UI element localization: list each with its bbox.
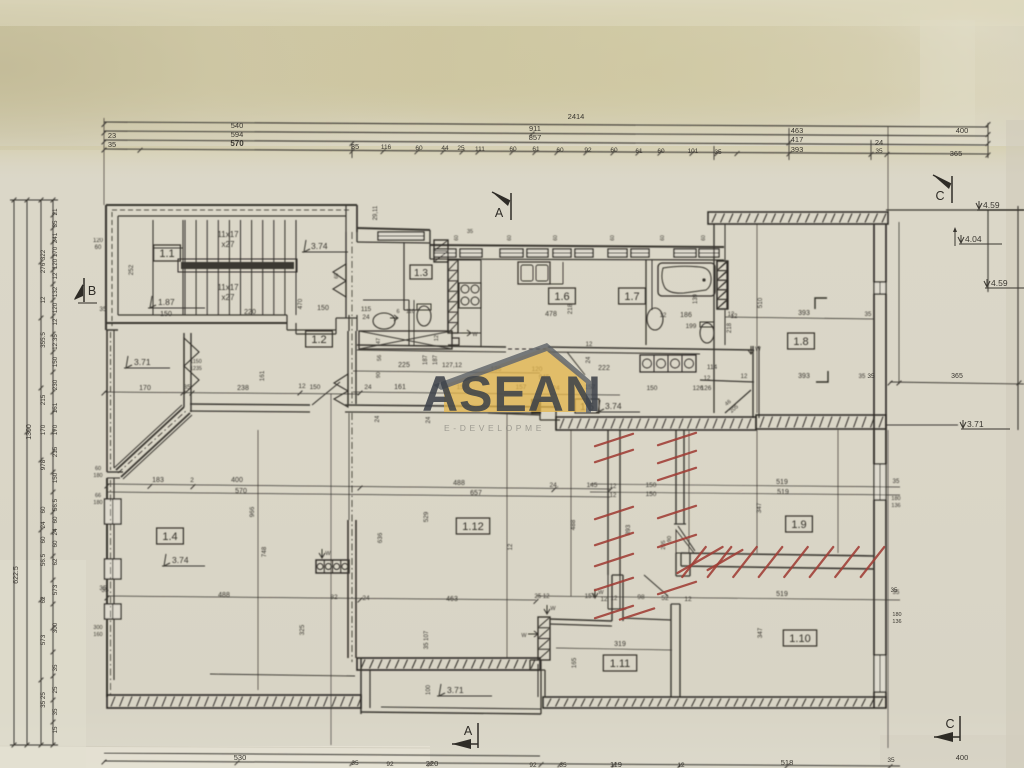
svg-text:478: 478 xyxy=(545,311,557,318)
svg-text:24: 24 xyxy=(586,356,592,363)
svg-text:519: 519 xyxy=(776,591,788,598)
svg-text:29,11: 29,11 xyxy=(373,205,379,220)
svg-text:12: 12 xyxy=(434,335,440,341)
svg-text:60: 60 xyxy=(334,273,340,279)
svg-text:12: 12 xyxy=(677,762,685,768)
svg-text:161: 161 xyxy=(259,370,266,381)
svg-text:15: 15 xyxy=(52,726,59,734)
svg-text:35: 35 xyxy=(865,312,872,318)
svg-text:170: 170 xyxy=(40,424,47,435)
svg-text:400: 400 xyxy=(956,126,969,135)
svg-text:657: 657 xyxy=(470,490,482,497)
svg-text:24,: 24, xyxy=(549,482,558,489)
svg-text:23: 23 xyxy=(108,131,116,140)
svg-text:150: 150 xyxy=(52,472,59,483)
svg-text:92: 92 xyxy=(529,762,537,768)
svg-text:12.35: 12.35 xyxy=(52,334,59,350)
svg-text:35: 35 xyxy=(101,587,109,594)
svg-text:857: 857 xyxy=(529,133,542,142)
svg-text:636: 636 xyxy=(377,532,384,543)
svg-text:21: 21 xyxy=(52,208,59,216)
svg-text:12: 12 xyxy=(298,383,306,390)
svg-text:276: 276 xyxy=(40,262,47,273)
svg-text:529: 529 xyxy=(423,511,430,522)
svg-text:12: 12 xyxy=(610,493,617,499)
svg-text:463: 463 xyxy=(446,596,458,603)
svg-text:115: 115 xyxy=(361,306,372,313)
svg-text:4.04: 4.04 xyxy=(965,234,982,244)
svg-text:1.12: 1.12 xyxy=(462,521,483,533)
svg-text:60: 60 xyxy=(553,235,559,241)
svg-text:573: 573 xyxy=(52,584,59,595)
svg-text:B: B xyxy=(88,284,96,298)
svg-text:35: 35 xyxy=(859,374,866,380)
svg-text:60: 60 xyxy=(95,466,101,472)
svg-text:150: 150 xyxy=(52,356,59,367)
svg-text:111: 111 xyxy=(475,146,485,153)
svg-text:W: W xyxy=(521,633,527,639)
svg-text:319: 319 xyxy=(614,641,626,648)
svg-text:C: C xyxy=(935,189,944,203)
svg-text:215: 215 xyxy=(40,394,47,405)
svg-text:35: 35 xyxy=(893,590,900,596)
svg-text:161: 161 xyxy=(52,402,59,413)
svg-text:35: 35 xyxy=(893,479,900,485)
svg-text:11x17: 11x17 xyxy=(217,230,239,239)
svg-text:3.74: 3.74 xyxy=(311,241,328,251)
svg-text:35 25: 35 25 xyxy=(40,692,47,708)
svg-text:463: 463 xyxy=(791,126,804,135)
svg-text:170: 170 xyxy=(139,385,151,392)
svg-text:25: 25 xyxy=(457,145,465,152)
svg-text:6: 6 xyxy=(396,309,399,315)
svg-text:60: 60 xyxy=(95,245,102,251)
svg-text:60: 60 xyxy=(40,536,47,544)
svg-text:145: 145 xyxy=(587,482,598,489)
svg-text:470: 470 xyxy=(297,298,304,309)
svg-text:488: 488 xyxy=(218,592,230,599)
svg-text:165: 165 xyxy=(571,657,578,668)
svg-text:35: 35 xyxy=(875,148,883,155)
svg-text:1.4: 1.4 xyxy=(162,531,177,543)
svg-text:218: 218 xyxy=(567,303,574,314)
svg-text:12: 12 xyxy=(40,296,47,304)
svg-text:12: 12 xyxy=(741,374,748,380)
svg-text:60: 60 xyxy=(660,235,666,241)
svg-text:160: 160 xyxy=(93,632,102,638)
svg-text:519: 519 xyxy=(776,479,788,486)
svg-text:3.74: 3.74 xyxy=(605,401,622,411)
svg-text:12: 12 xyxy=(660,313,667,319)
svg-text:136: 136 xyxy=(892,619,901,625)
svg-text:12: 12 xyxy=(611,596,618,602)
svg-text:100: 100 xyxy=(426,684,432,695)
svg-text:24: 24 xyxy=(40,521,47,529)
svg-text:238: 238 xyxy=(237,385,249,392)
svg-text:90: 90 xyxy=(376,372,382,378)
svg-text:911: 911 xyxy=(529,124,541,133)
svg-text:60: 60 xyxy=(701,235,707,241)
svg-text:966: 966 xyxy=(249,506,256,517)
svg-text:2: 2 xyxy=(190,477,194,484)
svg-text:12: 12 xyxy=(52,318,59,326)
svg-text:116: 116 xyxy=(381,144,392,151)
svg-text:101: 101 xyxy=(688,148,699,155)
svg-text:A: A xyxy=(495,206,504,220)
svg-text:1235: 1235 xyxy=(190,366,202,372)
svg-text:241: 241 xyxy=(52,232,59,243)
svg-text:748: 748 xyxy=(261,546,268,557)
svg-text:355.5: 355.5 xyxy=(40,332,47,348)
svg-text:56.5: 56.5 xyxy=(40,553,47,566)
svg-text:61: 61 xyxy=(635,148,643,155)
svg-text:488: 488 xyxy=(453,480,465,487)
svg-text:12: 12 xyxy=(52,272,59,280)
svg-text:150: 150 xyxy=(310,384,321,391)
svg-text:56: 56 xyxy=(377,355,383,361)
svg-text:35: 35 xyxy=(52,708,59,716)
svg-text:60: 60 xyxy=(40,506,47,514)
svg-text:183: 183 xyxy=(152,477,164,484)
svg-text:300: 300 xyxy=(52,622,59,633)
svg-text:12: 12 xyxy=(728,312,735,318)
svg-text:120: 120 xyxy=(52,302,59,313)
svg-text:35: 35 xyxy=(351,760,359,767)
svg-text:1.9: 1.9 xyxy=(791,519,806,531)
svg-text:300: 300 xyxy=(93,625,102,631)
svg-text:126: 126 xyxy=(693,385,704,392)
svg-text:150: 150 xyxy=(647,385,658,392)
svg-text:540: 540 xyxy=(231,121,244,130)
svg-text:60: 60 xyxy=(610,147,618,154)
svg-text:W: W xyxy=(550,606,556,612)
svg-text:325: 325 xyxy=(299,624,306,635)
svg-text:220: 220 xyxy=(244,309,256,316)
svg-text:170: 170 xyxy=(52,246,59,257)
svg-text:1.11: 1.11 xyxy=(610,658,631,670)
svg-text:24: 24 xyxy=(364,384,372,391)
svg-text:35: 35 xyxy=(183,384,191,391)
svg-text:60: 60 xyxy=(454,235,460,241)
svg-text:180: 180 xyxy=(892,612,901,618)
svg-text:x27: x27 xyxy=(222,293,235,302)
svg-text:393: 393 xyxy=(798,373,810,380)
svg-text:E-DEVELOPME: E-DEVELOPME xyxy=(444,423,545,433)
svg-text:1.2: 1.2 xyxy=(311,334,326,346)
svg-text:66: 66 xyxy=(95,493,101,499)
svg-text:62: 62 xyxy=(40,596,47,604)
svg-text:11x17: 11x17 xyxy=(217,283,239,292)
svg-text:230: 230 xyxy=(52,379,59,390)
svg-text:110: 110 xyxy=(406,309,415,315)
svg-text:4.59: 4.59 xyxy=(991,278,1008,288)
svg-text:x27: x27 xyxy=(222,240,235,249)
svg-text:35: 35 xyxy=(52,220,59,228)
svg-text:322: 322 xyxy=(40,249,47,260)
svg-text:170: 170 xyxy=(52,424,59,435)
svg-text:139: 139 xyxy=(693,293,699,304)
svg-text:2414: 2414 xyxy=(568,112,585,121)
svg-text:199: 199 xyxy=(686,323,697,330)
svg-text:180: 180 xyxy=(891,496,900,502)
svg-text:W: W xyxy=(472,332,478,338)
svg-text:12: 12 xyxy=(704,376,711,382)
svg-text:393: 393 xyxy=(798,310,810,317)
svg-text:3.71: 3.71 xyxy=(134,357,151,367)
svg-text:82: 82 xyxy=(330,594,338,601)
svg-text:150: 150 xyxy=(317,305,329,312)
svg-text:4.59: 4.59 xyxy=(983,200,1000,210)
svg-text:61: 61 xyxy=(532,146,540,153)
svg-text:252: 252 xyxy=(128,264,135,275)
svg-text:44: 44 xyxy=(441,145,449,152)
svg-text:365: 365 xyxy=(951,373,963,380)
svg-text:365: 365 xyxy=(950,149,963,158)
svg-text:35: 35 xyxy=(108,140,116,149)
svg-text:35: 35 xyxy=(52,664,59,672)
svg-text:1.7: 1.7 xyxy=(624,291,639,303)
svg-text:35: 35 xyxy=(887,757,895,764)
svg-text:136: 136 xyxy=(891,503,900,509)
svg-text:187: 187 xyxy=(423,354,429,365)
svg-text:150: 150 xyxy=(646,491,657,498)
svg-text:570: 570 xyxy=(230,139,244,148)
svg-text:161: 161 xyxy=(394,384,406,391)
svg-text:573: 573 xyxy=(40,634,47,645)
svg-text:978: 978 xyxy=(40,459,47,470)
svg-text:12: 12 xyxy=(601,597,608,603)
svg-text:12: 12 xyxy=(508,543,514,550)
svg-text:12: 12 xyxy=(684,596,692,603)
svg-text:92: 92 xyxy=(386,761,394,768)
svg-text:215: 215 xyxy=(52,446,59,457)
svg-text:60: 60 xyxy=(415,145,423,152)
svg-text:W: W xyxy=(598,590,604,596)
svg-text:24: 24 xyxy=(362,314,370,321)
svg-text:24: 24 xyxy=(375,415,381,422)
svg-text:150: 150 xyxy=(160,311,172,318)
svg-text:1150: 1150 xyxy=(190,359,201,365)
svg-text:92: 92 xyxy=(584,147,592,154)
svg-text:570: 570 xyxy=(235,488,247,495)
svg-text:12: 12 xyxy=(610,484,617,490)
svg-text:ASEAN: ASEAN xyxy=(422,366,602,422)
svg-text:A: A xyxy=(464,724,473,738)
svg-text:1.87: 1.87 xyxy=(158,297,175,307)
svg-text:225: 225 xyxy=(398,362,410,369)
svg-text:218: 218 xyxy=(727,322,733,333)
svg-text:519: 519 xyxy=(777,489,789,496)
svg-text:35 107: 35 107 xyxy=(424,630,430,649)
svg-text:400: 400 xyxy=(956,753,969,762)
svg-text:530: 530 xyxy=(234,753,247,762)
svg-text:347: 347 xyxy=(757,627,764,638)
svg-text:114: 114 xyxy=(707,364,718,371)
svg-text:3.71: 3.71 xyxy=(967,419,984,429)
svg-text:60: 60 xyxy=(509,146,517,153)
svg-text:60: 60 xyxy=(610,235,616,241)
svg-text:180: 180 xyxy=(93,500,102,506)
svg-text:C: C xyxy=(945,717,954,731)
svg-text:220: 220 xyxy=(426,759,439,768)
svg-text:187: 187 xyxy=(433,354,439,365)
svg-text:622.5: 622.5 xyxy=(13,566,20,584)
svg-text:35: 35 xyxy=(559,762,567,768)
svg-text:24: 24 xyxy=(52,528,59,536)
svg-text:186: 186 xyxy=(680,312,692,319)
svg-text:1.6: 1.6 xyxy=(554,291,569,303)
svg-text:150: 150 xyxy=(646,482,657,489)
svg-text:47: 47 xyxy=(376,338,382,344)
svg-text:60: 60 xyxy=(52,516,59,524)
svg-text:60: 60 xyxy=(52,540,59,548)
svg-text:1.10: 1.10 xyxy=(789,633,810,645)
svg-text:60: 60 xyxy=(507,235,513,241)
svg-text:119: 119 xyxy=(610,760,622,768)
svg-text:25: 25 xyxy=(52,686,59,694)
svg-text:35: 35 xyxy=(467,229,473,235)
svg-text:24: 24 xyxy=(362,595,370,602)
svg-text:594: 594 xyxy=(231,130,244,139)
svg-text:180: 180 xyxy=(93,473,102,479)
svg-text:3.71: 3.71 xyxy=(447,685,464,695)
svg-text:24: 24 xyxy=(875,138,883,147)
svg-text:1300: 1300 xyxy=(26,424,33,440)
svg-text:62: 62 xyxy=(52,558,59,566)
svg-text:1.3: 1.3 xyxy=(414,268,428,279)
svg-text:35: 35 xyxy=(99,306,107,313)
svg-text:90: 90 xyxy=(667,536,673,542)
svg-text:98: 98 xyxy=(637,594,645,601)
svg-text:1.8: 1.8 xyxy=(793,336,808,348)
svg-text:60: 60 xyxy=(556,147,564,154)
svg-text:510: 510 xyxy=(757,297,764,308)
svg-text:417: 417 xyxy=(791,135,804,144)
svg-text:60: 60 xyxy=(657,148,665,155)
svg-text:35: 35 xyxy=(714,149,722,156)
svg-text:400: 400 xyxy=(231,477,243,484)
svg-text:25 12: 25 12 xyxy=(534,594,550,600)
svg-text:518: 518 xyxy=(781,758,794,767)
svg-text:120: 120 xyxy=(52,258,59,269)
svg-text:W: W xyxy=(755,347,761,353)
svg-text:56.5: 56.5 xyxy=(52,498,59,511)
svg-text:3.74: 3.74 xyxy=(172,555,189,565)
svg-text:W: W xyxy=(325,551,331,557)
svg-text:1.1: 1.1 xyxy=(159,248,174,260)
svg-text:393: 393 xyxy=(791,145,804,154)
svg-text:132: 132 xyxy=(52,286,59,297)
svg-text:120: 120 xyxy=(93,238,104,244)
svg-text:35: 35 xyxy=(351,142,359,151)
